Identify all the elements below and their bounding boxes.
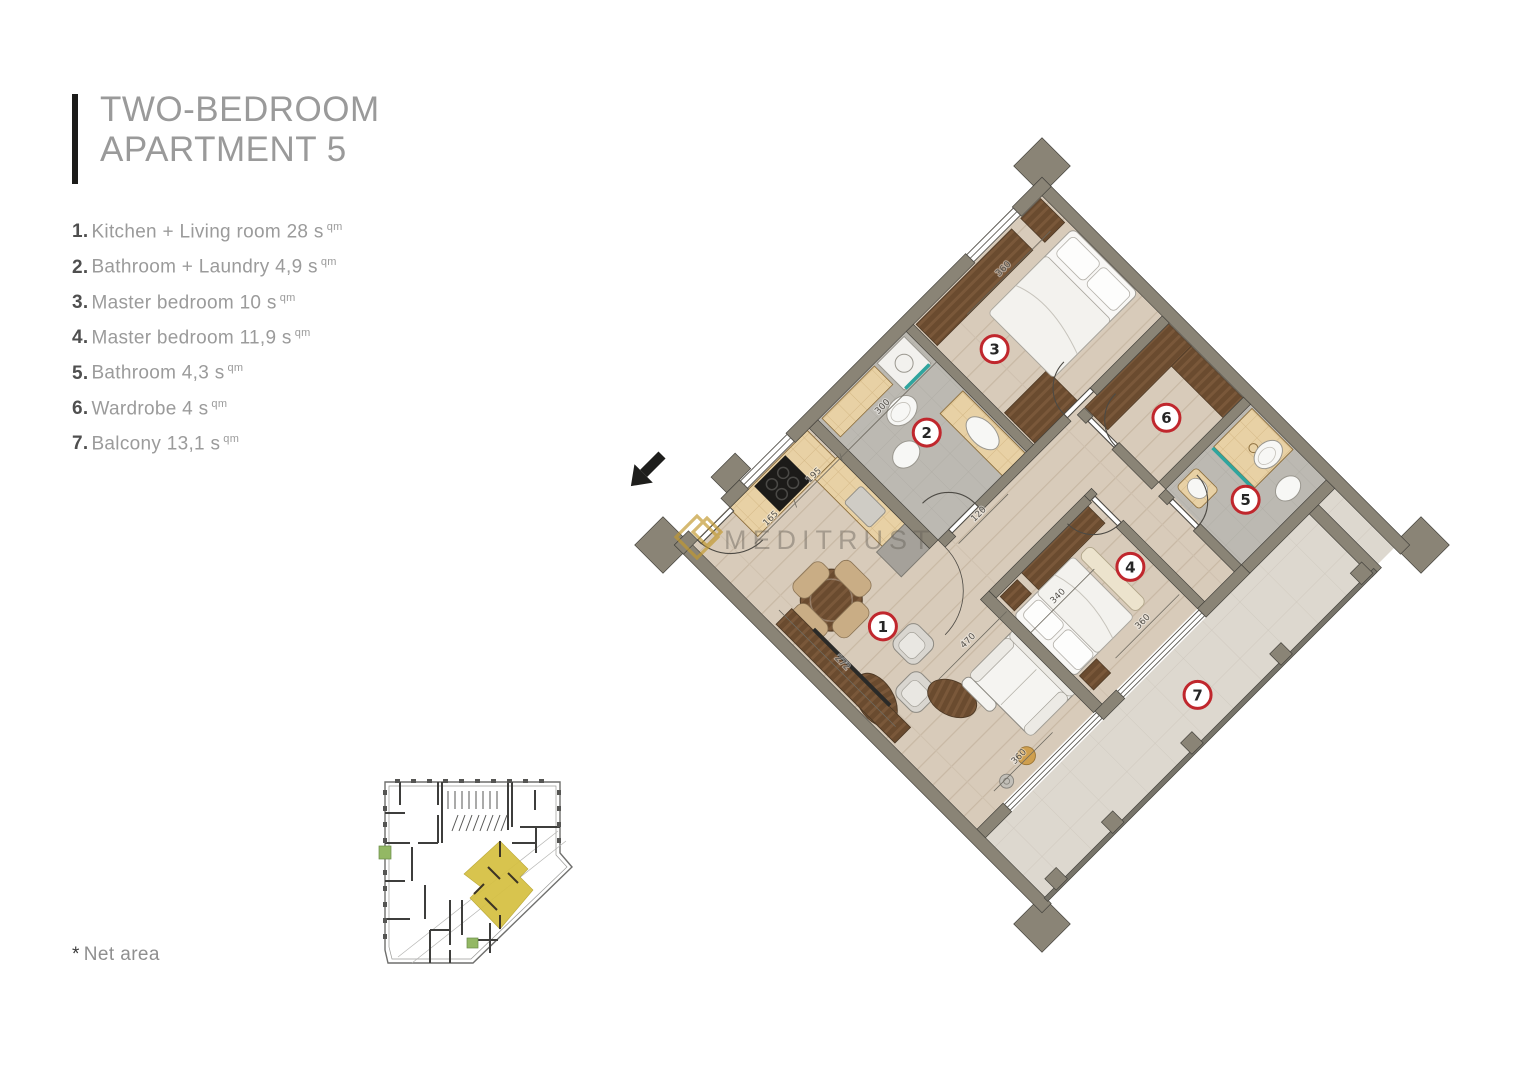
room-badge-2: 2	[913, 419, 940, 446]
room-badge-5: 5	[1232, 486, 1259, 513]
watermark-text: MEDITRUST	[724, 525, 936, 555]
badge-number: 5	[1240, 491, 1250, 509]
badge-number: 7	[1192, 686, 1202, 704]
room-badge-7: 7	[1184, 681, 1211, 708]
badge-number: 4	[1125, 558, 1135, 576]
badge-number: 2	[922, 424, 932, 442]
room-badge-4: 4	[1117, 553, 1144, 580]
room-badge-3: 3	[981, 336, 1008, 363]
room-badge-6: 6	[1153, 404, 1180, 431]
badge-number: 6	[1161, 409, 1171, 427]
floor-plan-canvas: 360300195165120272470340360360 1234567 M…	[0, 0, 1528, 1080]
entrance-arrow-icon	[622, 446, 671, 495]
room-badge-1: 1	[869, 613, 896, 640]
badge-number: 3	[989, 341, 999, 359]
badge-number: 1	[878, 618, 888, 636]
